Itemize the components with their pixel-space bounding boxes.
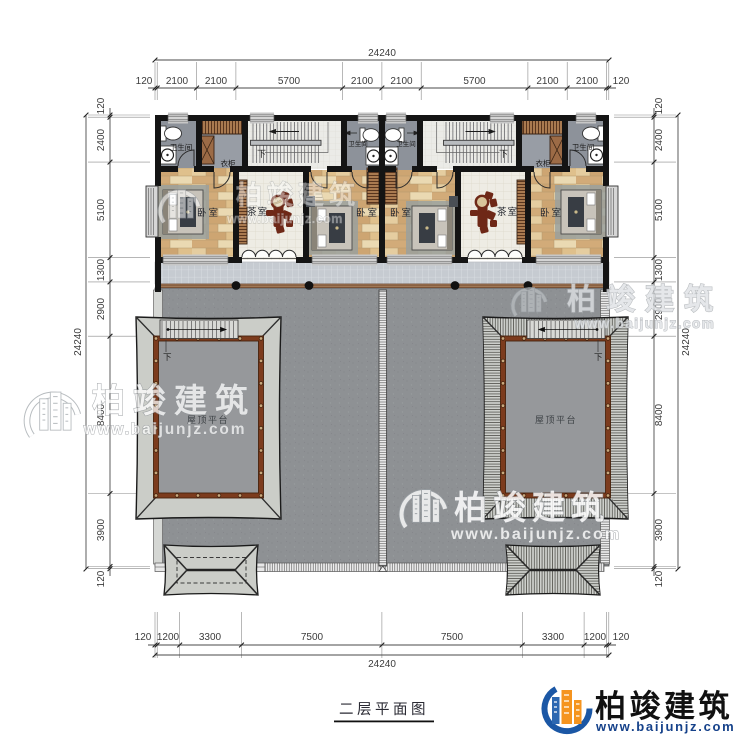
svg-text:24240: 24240 [368, 659, 396, 670]
svg-text:柏竣建筑: 柏竣建筑 [236, 180, 360, 210]
svg-text:2100: 2100 [536, 76, 559, 87]
svg-text:柏竣建筑: 柏竣建筑 [92, 382, 256, 419]
svg-text:1200: 1200 [584, 632, 607, 643]
svg-text:120: 120 [135, 632, 152, 643]
svg-text:www.baijunjz.com: www.baijunjz.com [226, 212, 343, 226]
svg-text:2100: 2100 [351, 76, 374, 87]
svg-text:下: 下 [499, 149, 508, 159]
svg-text:7500: 7500 [441, 632, 464, 643]
svg-text:卧室: 卧室 [390, 207, 413, 219]
svg-text:2100: 2100 [166, 76, 189, 87]
svg-text:二层平面图: 二层平面图 [339, 702, 429, 718]
svg-text:3300: 3300 [199, 632, 222, 643]
svg-text:3300: 3300 [542, 632, 565, 643]
svg-text:衣柜: 衣柜 [536, 158, 551, 168]
svg-text:www.baijunjz.com: www.baijunjz.com [83, 421, 247, 438]
svg-text:卧室: 卧室 [197, 207, 220, 219]
svg-text:下: 下 [163, 352, 172, 362]
svg-text:120: 120 [96, 570, 107, 587]
svg-text:下: 下 [257, 149, 266, 159]
svg-text:柏竣建筑: 柏竣建筑 [454, 489, 610, 526]
svg-text:24240: 24240 [73, 328, 84, 356]
svg-text:www.baijunjz.com: www.baijunjz.com [595, 719, 735, 734]
svg-text:5100: 5100 [654, 198, 665, 221]
svg-text:2100: 2100 [576, 76, 599, 87]
svg-text:5700: 5700 [278, 76, 301, 87]
svg-text:1200: 1200 [157, 632, 180, 643]
svg-text:卫生间: 卫生间 [348, 139, 368, 148]
svg-text:1300: 1300 [96, 258, 107, 281]
svg-text:柏竣建筑: 柏竣建筑 [567, 282, 723, 316]
svg-text:www.baijunjz.com: www.baijunjz.com [450, 526, 621, 543]
svg-text:卧室: 卧室 [540, 207, 563, 219]
svg-text:7500: 7500 [301, 632, 324, 643]
svg-text:24240: 24240 [368, 48, 396, 59]
svg-text:120: 120 [613, 76, 630, 87]
svg-text:茶室: 茶室 [497, 206, 518, 218]
svg-text:www.baijunjz.com: www.baijunjz.com [574, 316, 716, 331]
svg-text:下: 下 [594, 352, 603, 362]
svg-text:120: 120 [96, 97, 107, 114]
svg-text:1300: 1300 [654, 258, 665, 281]
svg-text:卫生间: 卫生间 [396, 139, 416, 148]
svg-text:5100: 5100 [96, 198, 107, 221]
svg-text:3900: 3900 [654, 518, 665, 541]
svg-text:5700: 5700 [463, 76, 486, 87]
svg-text:120: 120 [136, 76, 153, 87]
svg-text:2100: 2100 [390, 76, 413, 87]
svg-text:120: 120 [654, 97, 665, 114]
svg-text:2900: 2900 [96, 297, 107, 320]
svg-text:8400: 8400 [654, 403, 665, 426]
svg-text:屋顶平台: 屋顶平台 [535, 414, 577, 425]
svg-text:3900: 3900 [96, 518, 107, 541]
svg-text:2400: 2400 [654, 128, 665, 151]
svg-text:24240: 24240 [681, 328, 692, 356]
svg-text:120: 120 [613, 632, 630, 643]
svg-text:2100: 2100 [205, 76, 228, 87]
svg-text:120: 120 [654, 570, 665, 587]
svg-text:2400: 2400 [96, 128, 107, 151]
